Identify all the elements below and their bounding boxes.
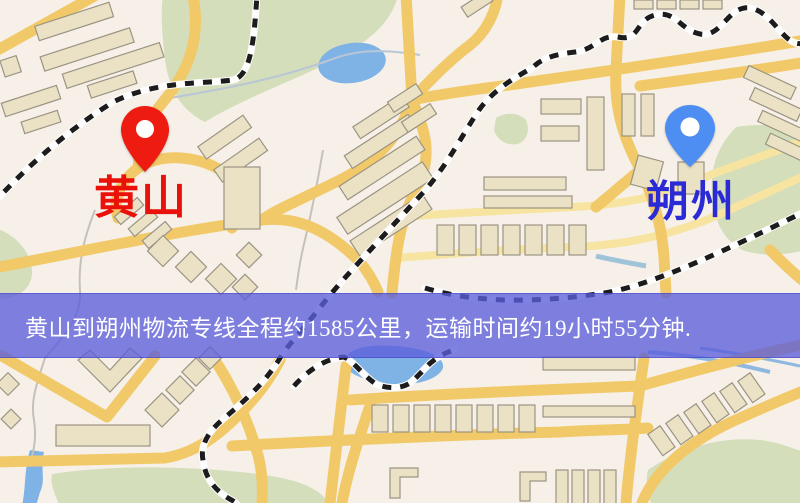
destination-pin-icon[interactable] [665, 105, 715, 167]
origin-label: 黄山 [86, 176, 196, 221]
origin-pin-icon[interactable] [121, 106, 169, 172]
route-info-banner: 黄山到朔州物流专线全程约1585公里，运输时间约19小时55分钟. [0, 293, 800, 358]
map-canvas[interactable]: 黄山 朔州 黄山到朔州物流专线全程约1585公里，运输时间约19小时55分钟. [0, 0, 800, 503]
route-info-text: 黄山到朔州物流专线全程约1585公里，运输时间约19小时55分钟. [0, 309, 691, 343]
map-background [0, 0, 800, 503]
destination-label: 朔州 [638, 181, 744, 224]
